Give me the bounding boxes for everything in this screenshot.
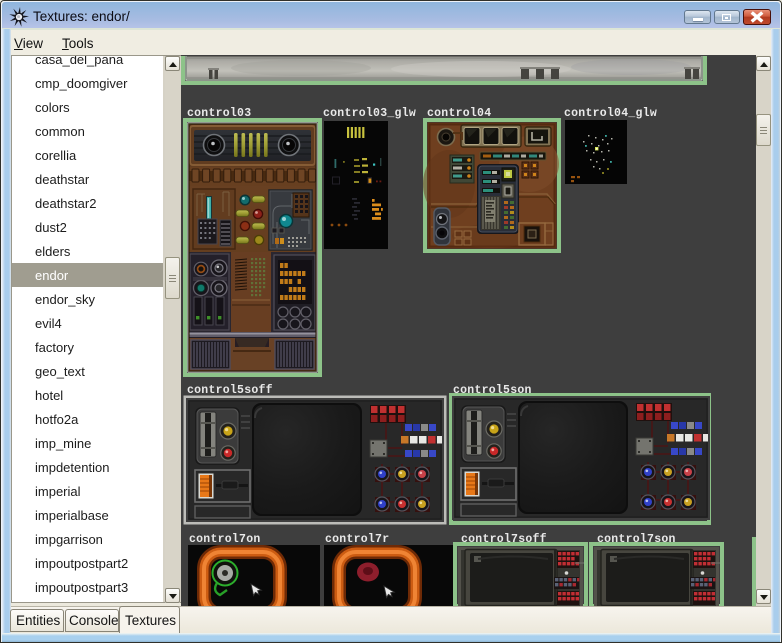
svg-text:control03_glw: control03_glw bbox=[323, 107, 416, 120]
svg-text:control5soff: control5soff bbox=[187, 384, 273, 397]
svg-text:control04_glw: control04_glw bbox=[564, 107, 657, 120]
svg-text:control7r: control7r bbox=[325, 533, 389, 546]
svg-text:control7on: control7on bbox=[189, 533, 261, 546]
